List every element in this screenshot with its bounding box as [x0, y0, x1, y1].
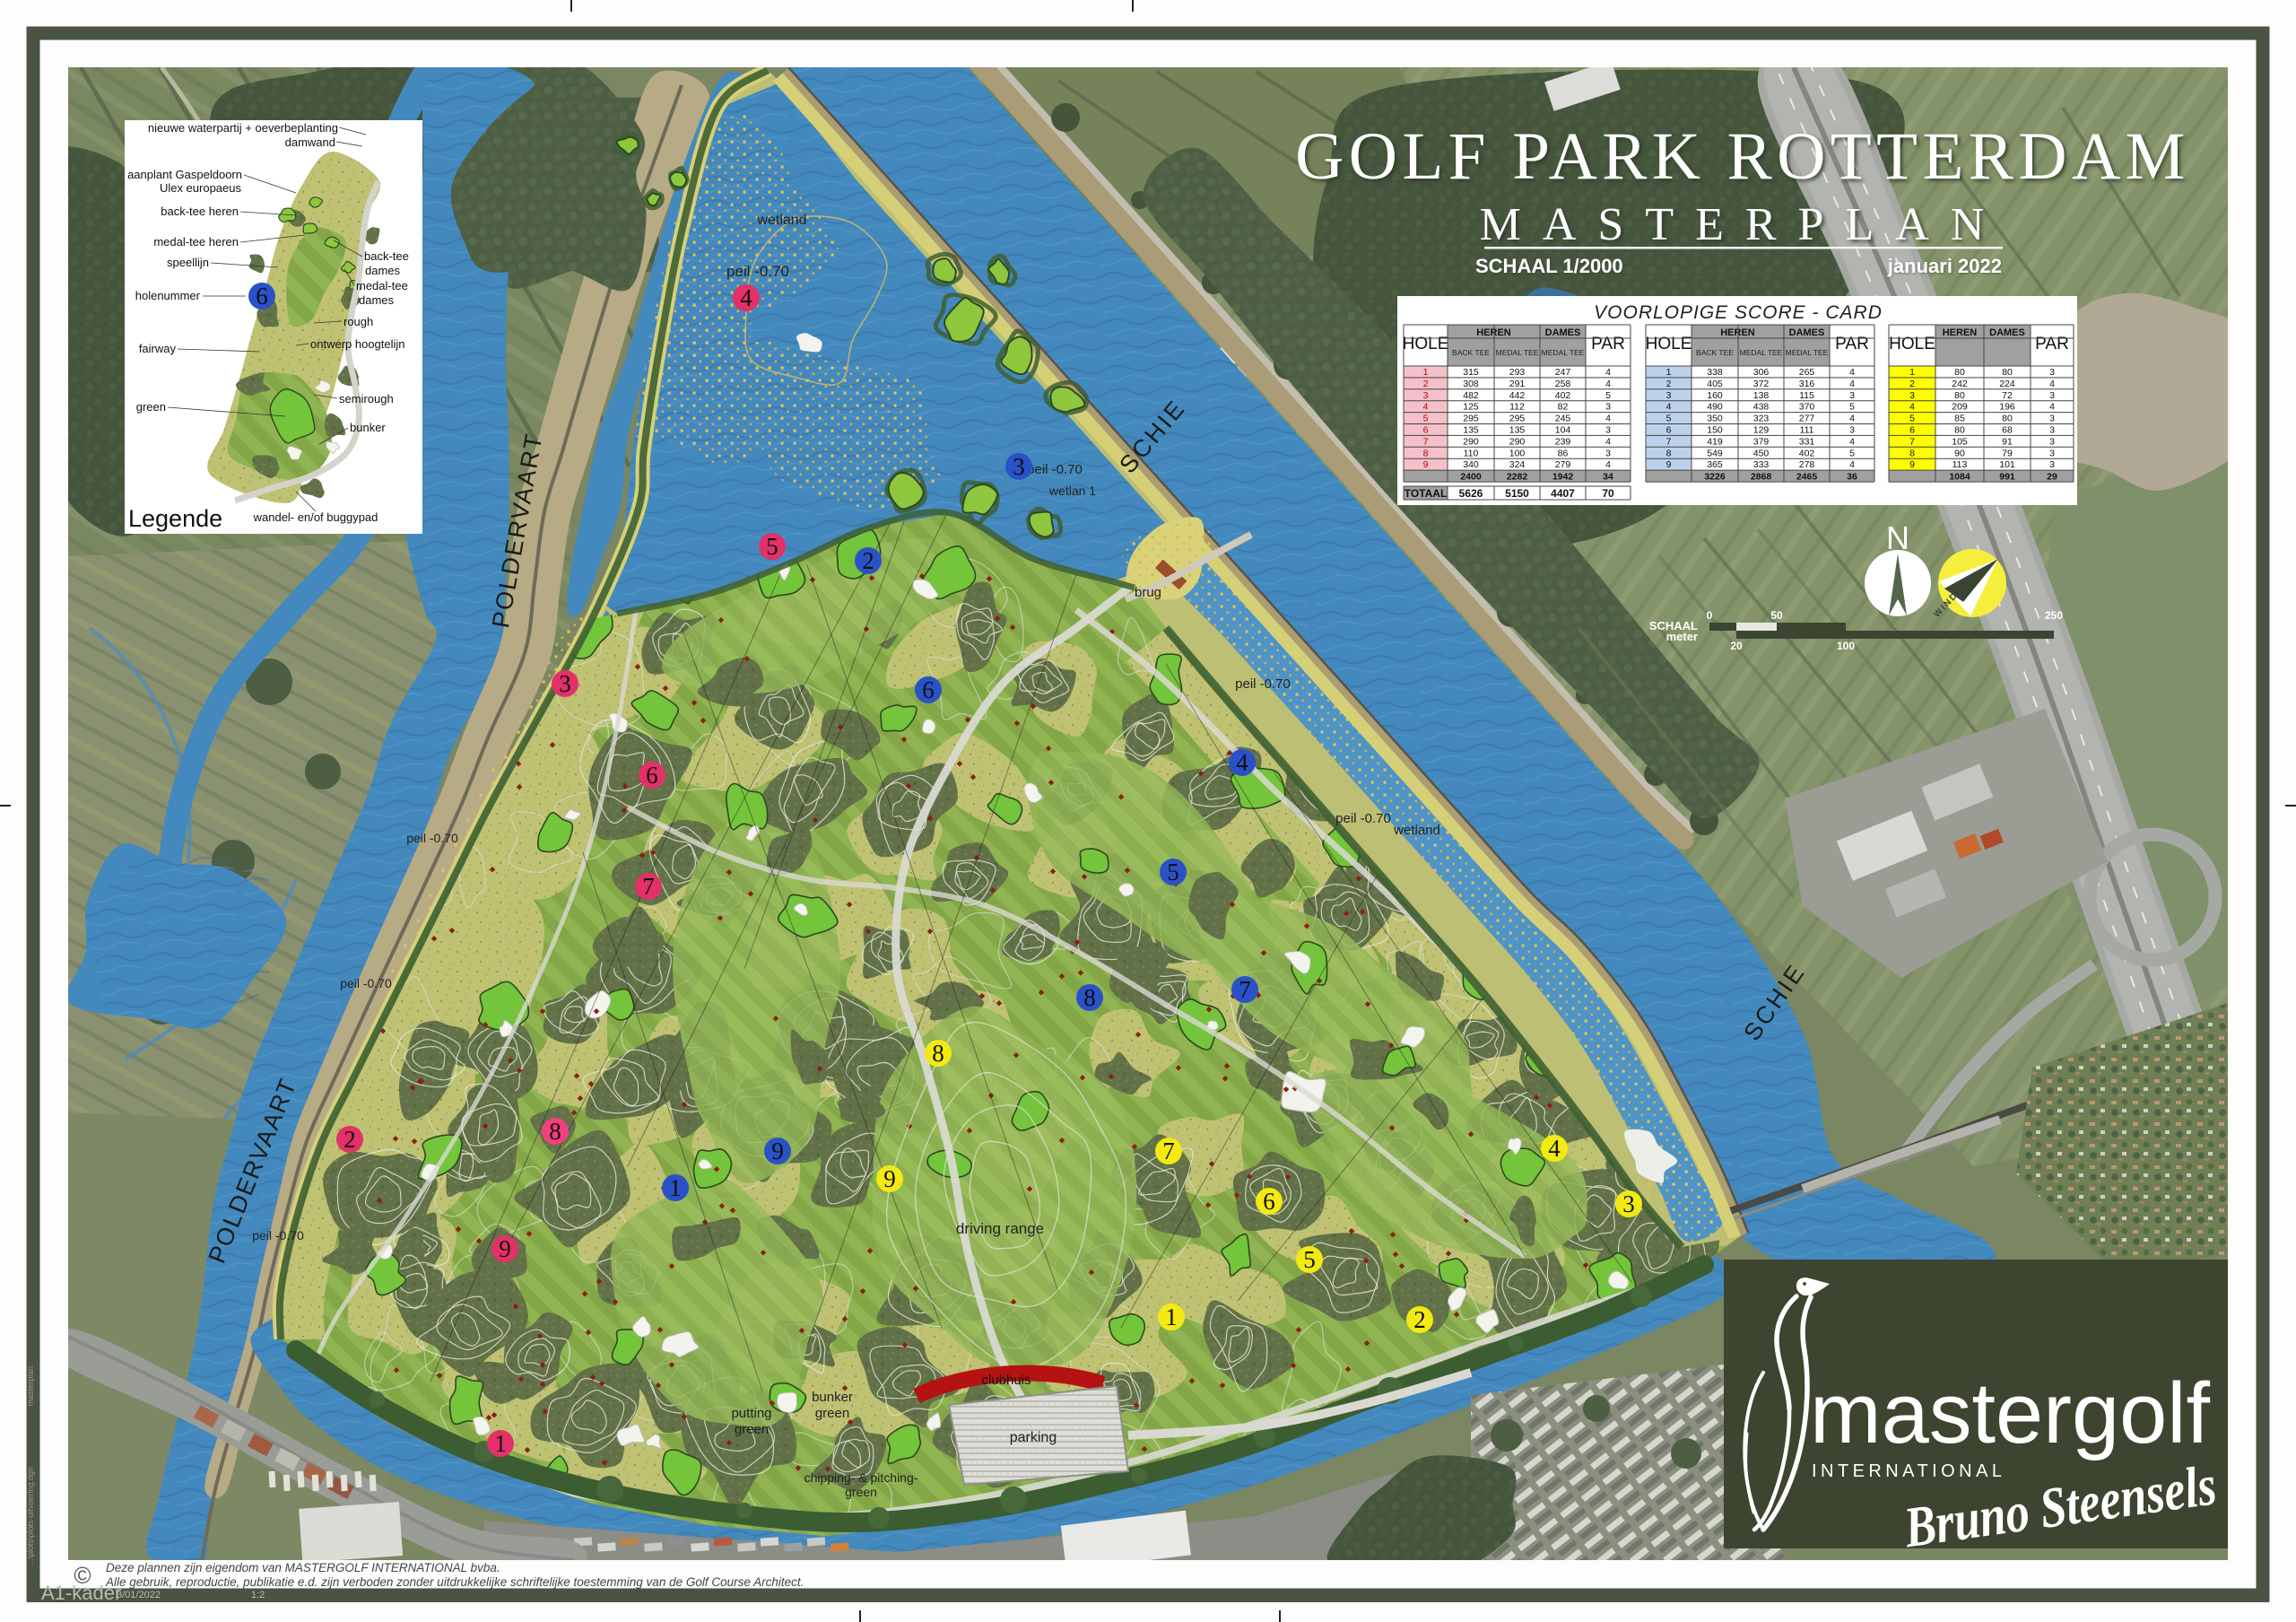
svg-text:290: 290	[1463, 436, 1479, 447]
svg-text:4: 4	[2049, 379, 2055, 389]
svg-text:TOTAAL: TOTAAL	[1405, 487, 1448, 500]
svg-text:Deze plannen zijn eigendom van: Deze plannen zijn eigendom van MASTERGOL…	[106, 1561, 500, 1574]
svg-text:6: 6	[646, 762, 658, 789]
svg-text:79: 79	[2002, 448, 2013, 458]
svg-text:VOORLOPIGE SCORE - CARD: VOORLOPIGE SCORE - CARD	[1594, 302, 1883, 323]
svg-text:1: 1	[1666, 367, 1672, 378]
svg-text:PAR: PAR	[2035, 335, 2069, 353]
svg-text:333: 333	[1753, 459, 1770, 470]
svg-text:BACK TEE: BACK TEE	[1452, 348, 1490, 357]
svg-text:7: 7	[642, 873, 655, 900]
svg-text:115: 115	[1799, 390, 1814, 401]
svg-text:6: 6	[1666, 425, 1672, 436]
svg-text:BACK TEE: BACK TEE	[1696, 348, 1734, 357]
svg-text:Ulex europaeus: Ulex europaeus	[160, 181, 242, 195]
svg-text:3226: 3226	[1704, 472, 1726, 483]
svg-text:4: 4	[1605, 367, 1611, 378]
svg-text:5150: 5150	[1505, 487, 1529, 500]
svg-text:135: 135	[1463, 425, 1479, 436]
svg-text:419: 419	[1707, 436, 1723, 447]
svg-text:4: 4	[1666, 402, 1672, 413]
svg-text:clubhuis: clubhuis	[981, 1373, 1031, 1388]
svg-text:20: 20	[1730, 640, 1743, 652]
svg-text:442: 442	[1509, 390, 1526, 401]
svg-text:1:2: 1:2	[251, 1590, 265, 1600]
svg-text:4: 4	[1605, 459, 1611, 470]
svg-text:338: 338	[1707, 367, 1723, 378]
svg-text:290: 290	[1509, 436, 1526, 447]
svg-text:9: 9	[1909, 459, 1915, 470]
svg-text:4: 4	[1909, 402, 1915, 413]
svg-text:258: 258	[1555, 379, 1571, 389]
svg-text:365: 365	[1707, 459, 1723, 470]
svg-text:101: 101	[1999, 459, 2015, 470]
svg-text:1084: 1084	[1949, 472, 1970, 483]
svg-text:3: 3	[1013, 453, 1025, 480]
svg-text:PAR: PAR	[1835, 335, 1869, 353]
svg-text:4: 4	[1423, 402, 1429, 413]
svg-text:372: 372	[1753, 379, 1770, 389]
svg-text:80: 80	[1954, 367, 1965, 378]
svg-text:3: 3	[1622, 1190, 1635, 1217]
svg-text:wandel- en/of buggypad: wandel- en/of buggypad	[253, 510, 378, 524]
svg-text:DAMES: DAMES	[1989, 327, 2025, 338]
svg-text:HOLE: HOLE	[1889, 335, 1935, 353]
svg-text:1: 1	[1423, 367, 1429, 378]
svg-text:5626: 5626	[1459, 487, 1483, 500]
svg-text:323: 323	[1753, 414, 1770, 424]
svg-text:peil -0.70: peil -0.70	[1235, 676, 1291, 692]
svg-text:6: 6	[1909, 425, 1915, 436]
svg-text:160: 160	[1707, 390, 1723, 401]
svg-text:3: 3	[1666, 390, 1672, 401]
svg-text:MASTERPLAN: MASTERPLAN	[1480, 199, 2006, 250]
svg-text:1: 1	[1165, 1304, 1178, 1330]
svg-text:50: 50	[1770, 609, 1783, 622]
svg-text:green: green	[136, 400, 166, 414]
svg-text:brug: brug	[1135, 585, 1161, 600]
svg-text:5: 5	[1167, 859, 1179, 885]
svg-text:meter: meter	[1666, 630, 1698, 643]
svg-text:5: 5	[1849, 402, 1855, 413]
svg-text:402: 402	[1799, 448, 1815, 458]
svg-text:1: 1	[669, 1174, 682, 1201]
svg-text:2: 2	[1413, 1306, 1426, 1333]
svg-text:MEDAL TEE: MEDAL TEE	[1542, 348, 1585, 357]
svg-text:8: 8	[549, 1118, 561, 1145]
svg-text:113: 113	[1952, 459, 1968, 470]
svg-text:9: 9	[771, 1138, 784, 1164]
svg-text:...\plots\plots-uitvoering.dgn: ...\plots\plots-uitvoering.dgn	[26, 1467, 35, 1565]
svg-text:1942: 1942	[1552, 472, 1574, 483]
svg-text:green: green	[735, 1422, 769, 1437]
svg-text:138: 138	[1753, 390, 1770, 401]
svg-text:2: 2	[1423, 379, 1429, 389]
svg-text:331: 331	[1799, 436, 1815, 447]
svg-text:379: 379	[1753, 436, 1770, 447]
svg-text:350: 350	[1707, 414, 1723, 424]
svg-text:265: 265	[1799, 367, 1815, 378]
svg-text:peil -0.70: peil -0.70	[1335, 811, 1391, 826]
svg-text:3: 3	[1605, 448, 1611, 458]
svg-text:chipping- & pitching-: chipping- & pitching-	[804, 1470, 918, 1485]
svg-text:4: 4	[1849, 414, 1855, 424]
svg-text:holenummer: holenummer	[135, 289, 201, 302]
svg-text:80: 80	[2002, 414, 2013, 424]
svg-text:2: 2	[344, 1126, 356, 1153]
svg-text:245: 245	[1555, 414, 1571, 424]
svg-text:7: 7	[1162, 1138, 1175, 1164]
svg-text:3: 3	[2049, 367, 2055, 378]
svg-text:rough: rough	[344, 315, 373, 328]
svg-text:4: 4	[1605, 436, 1611, 447]
svg-text:405: 405	[1707, 379, 1723, 389]
svg-text:bunker: bunker	[812, 1390, 853, 1405]
svg-text:wetland: wetland	[1393, 823, 1440, 838]
svg-text:aanplant Gaspeldoorn: aanplant Gaspeldoorn	[127, 168, 242, 181]
svg-text:90: 90	[1954, 448, 1965, 458]
svg-text:driving range: driving range	[956, 1220, 1044, 1237]
svg-text:86: 86	[1558, 448, 1569, 458]
svg-text:5: 5	[1605, 390, 1611, 401]
svg-text:GOLF PARK ROTTERDAM: GOLF PARK ROTTERDAM	[1295, 119, 2190, 194]
svg-text:4: 4	[1849, 367, 1855, 378]
svg-text:29: 29	[2047, 472, 2057, 483]
svg-text:315: 315	[1463, 367, 1479, 378]
svg-text:85: 85	[1954, 414, 1965, 424]
svg-text:9: 9	[1666, 459, 1672, 470]
svg-text:2282: 2282	[1507, 472, 1528, 483]
svg-text:112: 112	[1509, 402, 1525, 413]
svg-text:135: 135	[1509, 425, 1526, 436]
svg-text:peil -0.70: peil -0.70	[1027, 462, 1083, 477]
svg-text:MEDAL TEE: MEDAL TEE	[1496, 348, 1539, 357]
svg-text:2: 2	[1666, 379, 1672, 389]
svg-text:A1-kader: A1-kader	[41, 1582, 121, 1604]
svg-text:306: 306	[1753, 367, 1770, 378]
svg-text:2: 2	[1909, 379, 1915, 389]
svg-text:dames: dames	[365, 264, 401, 277]
svg-text:5: 5	[1909, 414, 1915, 424]
svg-text:7: 7	[1239, 976, 1251, 1003]
svg-text:3: 3	[1605, 402, 1611, 413]
svg-text:speellijn: speellijn	[167, 256, 209, 269]
svg-text:291: 291	[1509, 379, 1526, 389]
svg-text:340: 340	[1463, 459, 1479, 470]
svg-text:green: green	[815, 1406, 849, 1421]
svg-text:medal-tee heren: medal-tee heren	[153, 235, 239, 249]
svg-text:4: 4	[1236, 749, 1248, 776]
svg-text:PAR: PAR	[1591, 335, 1625, 353]
svg-text:278: 278	[1799, 459, 1815, 470]
svg-text:green: green	[845, 1485, 877, 1499]
svg-text:8: 8	[1666, 448, 1672, 458]
svg-text:4: 4	[1849, 379, 1855, 389]
svg-text:125: 125	[1463, 402, 1479, 413]
svg-text:4: 4	[1849, 436, 1855, 447]
svg-text:damwand: damwand	[285, 135, 335, 149]
svg-text:70: 70	[1602, 487, 1614, 500]
svg-text:mastergolf: mastergolf	[1810, 1365, 2210, 1461]
svg-text:semirough: semirough	[339, 392, 394, 405]
svg-text:back-tee: back-tee	[364, 249, 409, 263]
svg-text:34: 34	[1603, 472, 1613, 483]
svg-text:438: 438	[1753, 402, 1770, 413]
svg-text:4: 4	[1605, 379, 1611, 389]
svg-text:MEDAL TEE: MEDAL TEE	[1786, 348, 1829, 357]
svg-text:8: 8	[1909, 448, 1915, 458]
svg-text:3: 3	[2049, 390, 2055, 401]
svg-text:482: 482	[1463, 390, 1479, 401]
svg-text:5: 5	[766, 533, 778, 560]
svg-text:3: 3	[2049, 436, 2055, 447]
svg-text:150: 150	[1707, 425, 1723, 436]
svg-text:DAMES: DAMES	[1789, 327, 1825, 338]
svg-text:Alle gebruik, reproductie, pub: Alle gebruik, reproductie, publikatie e.…	[105, 1575, 804, 1589]
svg-text:490: 490	[1707, 402, 1723, 413]
svg-text:7: 7	[1423, 436, 1429, 447]
svg-text:peil -0.70: peil -0.70	[252, 1228, 304, 1243]
svg-text:INTERNATIONAL: INTERNATIONAL	[1812, 1461, 2009, 1481]
svg-text:5: 5	[1423, 414, 1429, 424]
svg-text:5: 5	[1849, 448, 1855, 458]
svg-text:80: 80	[2002, 367, 2013, 378]
svg-text:2: 2	[862, 547, 874, 574]
svg-text:68: 68	[2002, 425, 2013, 436]
svg-text:4: 4	[1849, 459, 1855, 470]
svg-text:back-tee heren: back-tee heren	[161, 205, 239, 218]
svg-text:100: 100	[1837, 640, 1855, 652]
svg-text:nieuwe waterpartij + oeverbepl: nieuwe waterpartij + oeverbeplanting	[148, 121, 338, 135]
svg-text:250: 250	[2045, 609, 2063, 622]
svg-text:0: 0	[1707, 609, 1713, 622]
svg-text:129: 129	[1753, 425, 1770, 436]
svg-text:82: 82	[1558, 402, 1569, 413]
svg-text:peil -0.70: peil -0.70	[340, 976, 392, 990]
svg-text:peil -0.70: peil -0.70	[726, 263, 789, 280]
svg-text:SCHAAL 1/2000: SCHAAL 1/2000	[1475, 255, 1623, 277]
svg-text:3/01/2022: 3/01/2022	[117, 1590, 161, 1600]
svg-text:105: 105	[1952, 436, 1968, 447]
svg-text:9: 9	[883, 1165, 896, 1192]
svg-text:1: 1	[1909, 367, 1915, 378]
svg-text:549: 549	[1707, 448, 1723, 458]
svg-text:peil -0.70: peil -0.70	[406, 831, 458, 845]
svg-text:316: 316	[1799, 379, 1815, 389]
svg-text:5: 5	[1666, 414, 1672, 424]
svg-text:279: 279	[1555, 459, 1571, 470]
svg-text:ontwerp hoogtelijn: ontwerp hoogtelijn	[310, 337, 405, 351]
svg-text:wetland: wetland	[756, 213, 806, 228]
svg-text:MEDAL TEE: MEDAL TEE	[1740, 348, 1783, 357]
svg-text:8: 8	[932, 1040, 944, 1067]
svg-text:295: 295	[1509, 414, 1526, 424]
svg-text:3: 3	[1849, 425, 1855, 436]
svg-text:80: 80	[1954, 390, 1965, 401]
svg-text:72: 72	[2002, 390, 2013, 401]
svg-text:104: 104	[1555, 425, 1571, 436]
svg-text:7: 7	[1909, 436, 1915, 447]
svg-text:100: 100	[1509, 448, 1526, 458]
svg-text:2868: 2868	[1751, 472, 1772, 483]
svg-text:dames: dames	[359, 293, 395, 307]
svg-text:80: 80	[1954, 425, 1965, 436]
svg-text:HOLE: HOLE	[1403, 335, 1449, 353]
svg-text:2465: 2465	[1796, 472, 1818, 483]
svg-text:402: 402	[1555, 390, 1571, 401]
svg-text:6: 6	[1263, 1188, 1275, 1215]
svg-text:3: 3	[1909, 390, 1915, 401]
svg-text:bunker: bunker	[350, 421, 386, 434]
svg-text:308: 308	[1463, 379, 1479, 389]
svg-text:110: 110	[1464, 448, 1479, 458]
svg-text:242: 242	[1952, 379, 1968, 389]
svg-text:3: 3	[2049, 425, 2055, 436]
svg-text:5: 5	[1303, 1246, 1316, 1273]
svg-text:239: 239	[1555, 436, 1571, 447]
svg-text:4: 4	[1548, 1135, 1561, 1162]
svg-text:2400: 2400	[1460, 472, 1482, 483]
svg-text:4407: 4407	[1551, 487, 1575, 500]
svg-text:991: 991	[1999, 472, 2015, 483]
svg-text:8: 8	[1423, 448, 1429, 458]
svg-text:4: 4	[740, 284, 752, 311]
svg-text:medal-tee: medal-tee	[356, 279, 408, 292]
svg-text:6: 6	[256, 283, 268, 310]
svg-text:277: 277	[1799, 414, 1815, 424]
svg-text:224: 224	[1999, 379, 2015, 389]
svg-text:putting: putting	[731, 1406, 771, 1421]
svg-text:7: 7	[1666, 436, 1672, 447]
svg-text:DAMES: DAMES	[1545, 327, 1581, 338]
svg-text:450: 450	[1753, 448, 1770, 458]
svg-text:9: 9	[1423, 459, 1429, 470]
svg-text:209: 209	[1952, 402, 1968, 413]
svg-text:1: 1	[494, 1430, 507, 1457]
svg-text:4: 4	[1605, 414, 1611, 424]
svg-text:3: 3	[2049, 414, 2055, 424]
svg-text:370: 370	[1799, 402, 1815, 413]
svg-text:9: 9	[499, 1235, 511, 1262]
svg-text:91: 91	[2002, 436, 2013, 447]
svg-text:3: 3	[2049, 459, 2055, 470]
svg-text:3: 3	[1423, 390, 1429, 401]
svg-text:3: 3	[2049, 448, 2055, 458]
svg-text:HOLE: HOLE	[1646, 335, 1692, 353]
svg-text:111: 111	[1800, 425, 1814, 436]
svg-text:3: 3	[1849, 390, 1855, 401]
svg-text:196: 196	[1999, 402, 2015, 413]
svg-text:324: 324	[1509, 459, 1526, 470]
svg-text:HEREN: HEREN	[1943, 327, 1978, 338]
svg-text:295: 295	[1463, 414, 1479, 424]
svg-text:januari 2022: januari 2022	[1887, 255, 2002, 277]
svg-text:293: 293	[1509, 367, 1526, 378]
svg-text:wetlan 1: wetlan 1	[1048, 484, 1096, 498]
svg-text:fairway: fairway	[139, 342, 177, 355]
svg-text:3: 3	[1605, 425, 1611, 436]
svg-text:4: 4	[2049, 402, 2055, 413]
svg-text:36: 36	[1847, 472, 1857, 483]
svg-text:247: 247	[1555, 367, 1571, 378]
svg-text:3: 3	[559, 670, 571, 697]
svg-text:6: 6	[1423, 425, 1429, 436]
svg-text:6: 6	[922, 676, 935, 703]
svg-text:Legende: Legende	[128, 505, 222, 532]
svg-text:8: 8	[1083, 984, 1096, 1011]
svg-text:masterplan: masterplan	[26, 1366, 35, 1407]
svg-text:parking: parking	[1010, 1430, 1057, 1445]
